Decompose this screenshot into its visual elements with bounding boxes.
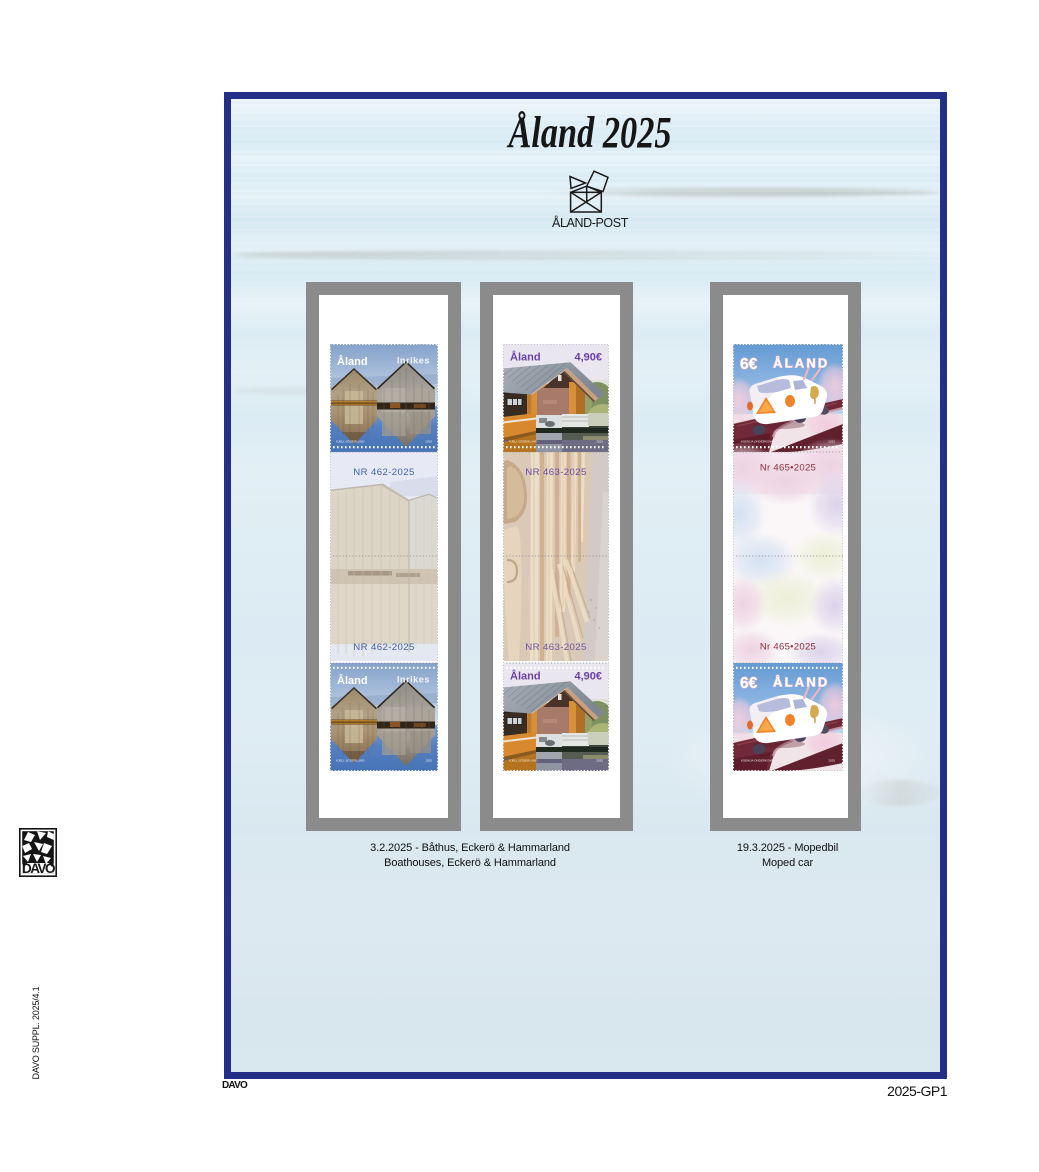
svg-text:Nr 465•2025: Nr 465•2025 [760, 642, 816, 653]
svg-text:Nr 465•2025: Nr 465•2025 [760, 463, 816, 474]
svg-text:NR 462-2025: NR 462-2025 [353, 467, 414, 478]
svg-text:DAVO: DAVO [22, 861, 55, 876]
svg-text:NR 462-2025: NR 462-2025 [353, 642, 414, 653]
svg-text:NR 463-2025: NR 463-2025 [525, 642, 586, 653]
svg-text:ÅLAND-POST: ÅLAND-POST [552, 215, 629, 230]
svg-text:NR 463-2025: NR 463-2025 [525, 467, 586, 478]
